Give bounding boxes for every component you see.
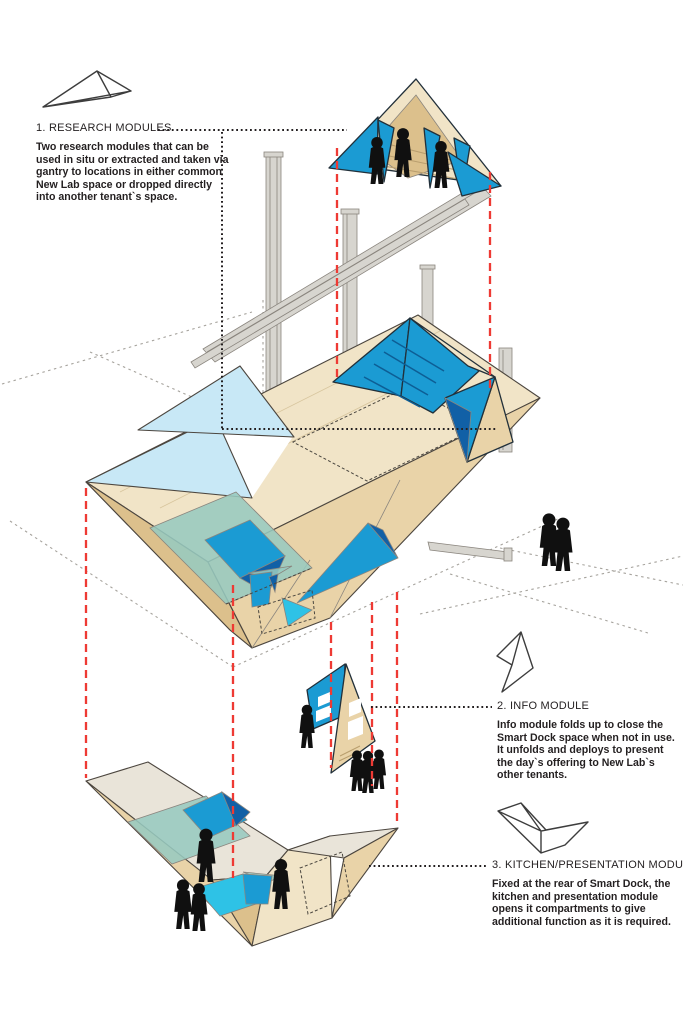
research-module-extracted <box>329 79 501 196</box>
annotation-research: 1. RESEARCH MODULES Two research modules… <box>36 122 232 204</box>
annotation-info: 2. INFO MODULE Info module folds up to c… <box>497 700 677 782</box>
research-module-icon <box>43 71 131 107</box>
research-heading: 1. RESEARCH MODULES <box>36 122 232 134</box>
kitchen-body: Fixed at the rear of Smart Dock, the kit… <box>492 878 678 928</box>
info-body: Info module folds up to close the Smart … <box>497 719 677 782</box>
info-heading: 2. INFO MODULE <box>497 700 677 712</box>
annotation-kitchen: 3. KITCHEN/PRESENTATION MODULE Fixed at … <box>492 859 678 928</box>
info-module-icon <box>497 632 533 692</box>
kitchen-module <box>86 762 398 946</box>
research-body: Two research modules that can be used in… <box>36 141 232 204</box>
bystander-figures <box>540 513 573 571</box>
kitchen-module-icon <box>498 803 588 853</box>
diagram-page: 1. RESEARCH MODULES Two research modules… <box>0 0 683 1024</box>
kitchen-heading: 3. KITCHEN/PRESENTATION MODULE <box>492 859 678 871</box>
